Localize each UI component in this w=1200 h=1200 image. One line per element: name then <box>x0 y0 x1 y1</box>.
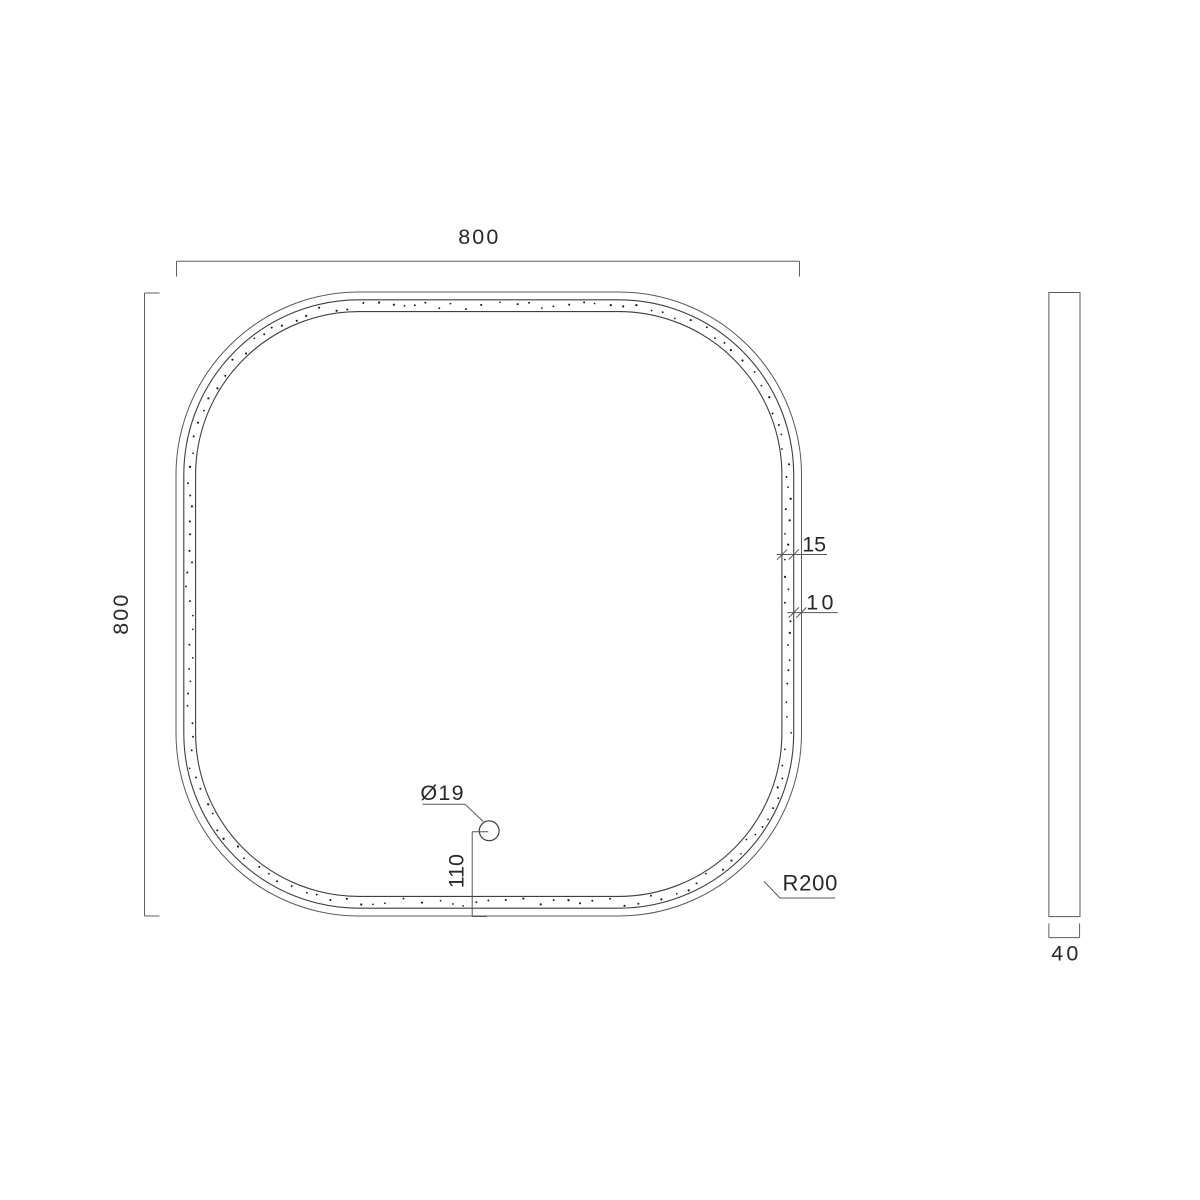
svg-text:Ø19: Ø19 <box>420 781 465 805</box>
svg-text:40: 40 <box>1051 942 1081 966</box>
svg-text:800: 800 <box>109 592 133 634</box>
svg-text:15: 15 <box>802 533 826 557</box>
svg-text:R200: R200 <box>783 871 839 896</box>
svg-text:10: 10 <box>806 590 837 614</box>
svg-text:800: 800 <box>458 225 500 249</box>
svg-text:110: 110 <box>444 854 468 888</box>
